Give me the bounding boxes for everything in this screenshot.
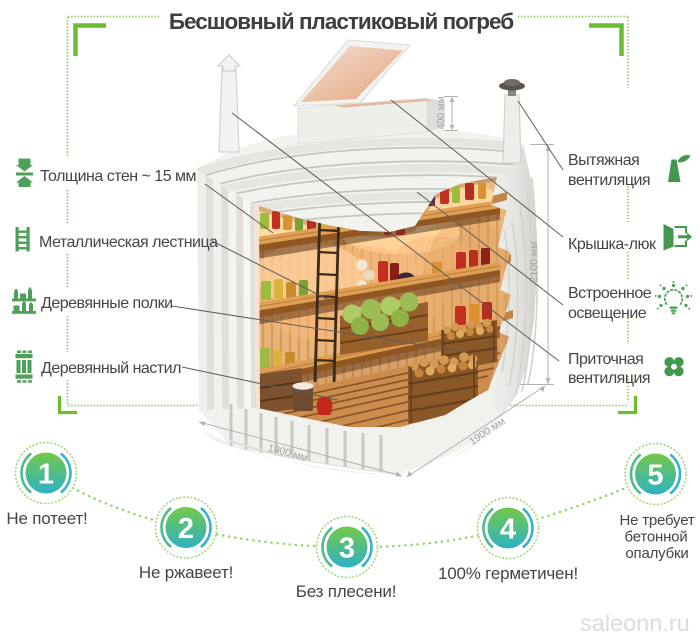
svg-text:Приточная: Приточная: [568, 351, 643, 368]
svg-text:2100 мм: 2100 мм: [528, 242, 540, 283]
svg-text:saleonn.ru: saleonn.ru: [580, 610, 690, 636]
svg-text:Вытяжная: Вытяжная: [568, 152, 639, 169]
svg-text:2: 2: [178, 513, 194, 545]
svg-text:400 мм: 400 мм: [436, 96, 447, 129]
svg-text:4: 4: [500, 514, 516, 546]
svg-text:100% герметичен!: 100% герметичен!: [438, 564, 578, 583]
svg-text:вентиляция: вентиляция: [568, 370, 650, 387]
svg-text:освещение: освещение: [568, 305, 647, 322]
svg-text:5: 5: [647, 460, 663, 492]
svg-text:Не требует: Не требует: [619, 512, 694, 529]
svg-text:Бесшовный пластиковый погреб: Бесшовный пластиковый погреб: [169, 9, 514, 34]
svg-text:3: 3: [339, 533, 355, 565]
svg-text:Толщина стен ~ 15 мм: Толщина стен ~ 15 мм: [40, 168, 196, 185]
svg-text:опалубки: опалубки: [625, 545, 688, 562]
svg-text:Деревянные полки: Деревянные полки: [41, 295, 173, 312]
svg-text:Не потеет!: Не потеет!: [6, 509, 87, 528]
svg-text:Не ржавеет!: Не ржавеет!: [139, 563, 233, 582]
svg-text:1: 1: [38, 459, 54, 491]
svg-text:Деревянный настил: Деревянный настил: [41, 360, 181, 377]
svg-text:вентиляция: вентиляция: [568, 172, 650, 189]
svg-text:Встроенное: Встроенное: [568, 285, 652, 302]
svg-text:Металлическая лестница: Металлическая лестница: [39, 234, 218, 251]
svg-text:бетонной: бетонной: [625, 529, 688, 546]
svg-text:Крышка-люк: Крышка-люк: [568, 236, 657, 253]
svg-text:Без плесени!: Без плесени!: [296, 582, 397, 601]
